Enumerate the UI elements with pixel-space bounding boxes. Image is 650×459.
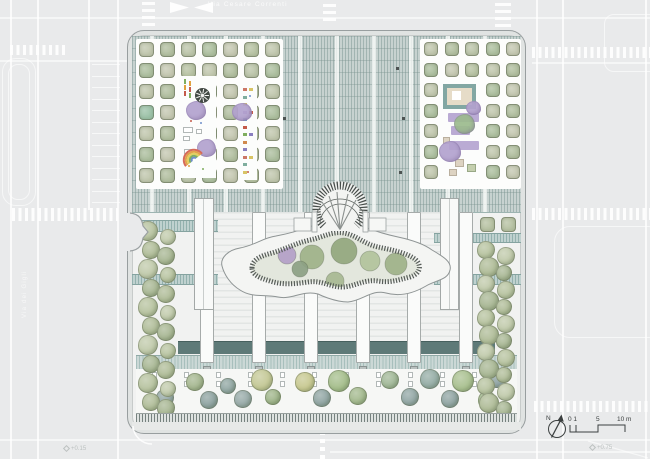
north-label: N: [546, 415, 551, 422]
street-label-top: Via Cesare Correnti: [208, 1, 288, 8]
north-arrow-icon: N: [546, 415, 566, 438]
garden-tree: [292, 261, 308, 277]
plan-vector-layer: N 0 1 5 10 m: [0, 0, 650, 459]
scale-zero: 0 1: [568, 416, 577, 423]
road-marking-icon: [170, 2, 213, 13]
benchmark-icon: [63, 445, 70, 452]
garden-tree: [331, 238, 357, 264]
scale-bar: 0 1 5 10 m: [568, 416, 631, 432]
street-label-left: Via dei Gigli: [22, 270, 28, 318]
site-plan: N 0 1 5 10 m Via Cesare Correnti Via dei…: [0, 0, 650, 459]
carousel-wheel-icon: [195, 88, 210, 103]
spot-elevation-right: +0.75: [590, 445, 612, 451]
wheel-hub: [201, 94, 204, 97]
scale-five: 5: [596, 416, 600, 423]
spot-elevation-left: +0.15: [64, 446, 86, 452]
rainbow-play-icon: [180, 146, 202, 167]
garden-tree: [360, 251, 380, 271]
garden-tree: [385, 253, 407, 275]
curb-arc: [133, 426, 152, 444]
fan-arch-pavilion: [294, 185, 386, 232]
benchmark-icon: [589, 444, 596, 451]
boundary-notch: [122, 213, 148, 251]
scale-ten: 10 m: [617, 416, 631, 423]
